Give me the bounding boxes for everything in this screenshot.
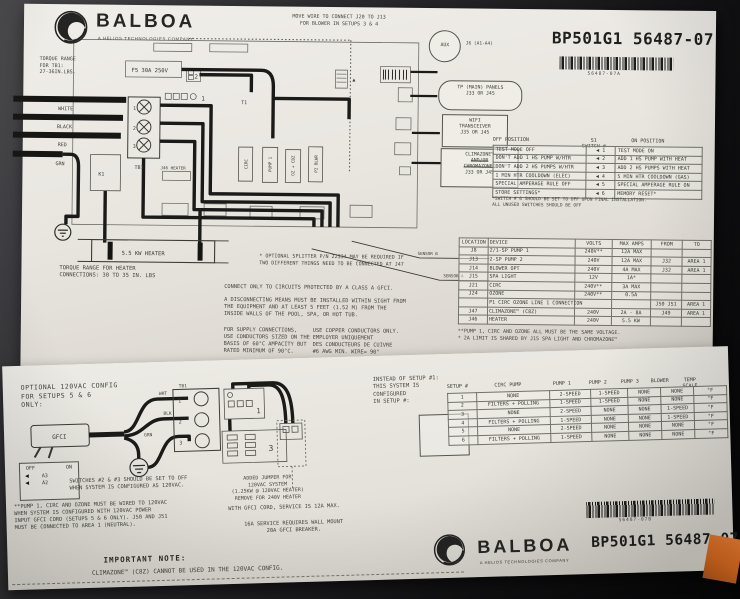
aux-label: AUX (440, 43, 449, 48)
table-cell: ◀ 2 (586, 155, 615, 164)
copper-note: USE COPPER CONDUCTORS ONLY.EMPLOYER UNIQ… (313, 328, 399, 357)
switch-footnotes: *SWITCH # 6 SHOULD BE SET TO OFF UPON FI… (492, 197, 647, 210)
gfci-plug (31, 424, 90, 459)
table-cell: 1A* (612, 274, 651, 283)
table-cell: FILTERS + POLLING (478, 434, 551, 445)
table-cell: NONE (662, 430, 695, 440)
alignment-mark-icon: ▲ (352, 77, 355, 83)
table-cell (682, 275, 711, 284)
table-cell (651, 248, 682, 257)
table-cell: J15 (459, 272, 488, 281)
conn2-label: 2 (194, 74, 198, 81)
relay-pump1-label: PUMP 1 (267, 156, 272, 172)
table-cell: AREA 1 (682, 257, 711, 266)
ground-icon (55, 224, 71, 240)
table-cell: 3A MAX (612, 282, 651, 291)
table-cell: 240V (574, 308, 611, 317)
block1-label: 1 (256, 407, 260, 415)
aux-ref: J6 (A1-A4) (466, 41, 493, 47)
brand-tagline: A HELIOS TECHNOLOGIES COMPANY (480, 558, 570, 565)
table-cell: 240V (575, 265, 612, 274)
table-cell: °F (695, 429, 728, 439)
torque-tb1-note: TORQUE RANGEFOR TB1:27-36IN.LBS. (39, 56, 75, 76)
table-cell: FROM (651, 240, 682, 249)
table-cell (682, 283, 711, 292)
table-cell: J32 (651, 257, 682, 266)
table-cell: J47 (458, 307, 487, 316)
table-cell: 240V** (575, 282, 612, 291)
table-cell: J13 (459, 255, 488, 264)
table-cell: AREA 1 (682, 300, 711, 309)
relay-blwr-label: P2 BLWR (313, 155, 318, 173)
tb1-terminal-2: 2 (179, 419, 182, 425)
dip-on-label: ON (66, 464, 72, 470)
brand-tagline: A HELIOS TECHNOLOGIES COMPANY (98, 36, 194, 42)
setup-table: 1NONE2-SPEED1-SPEEDNONENONE°F2FILTERS + … (447, 385, 728, 445)
heater-torque-note: TORQUE RANGE FOR HEATERCONNECTIONS: 30 T… (59, 265, 155, 281)
chip-barcode (383, 70, 406, 80)
table-cell (682, 292, 711, 301)
table-cell: 12A MAX (612, 248, 651, 257)
wire-grn-label: GRN (56, 161, 65, 167)
wire-white-label: WHITE (58, 106, 73, 112)
callout-leads (410, 72, 442, 163)
tb1-label: TB1 (134, 165, 143, 171)
table-cell (651, 274, 682, 283)
table-cell (682, 249, 711, 258)
jumper-note: ADDED JUMPER FOR120VAC SYSTEM(1.25KW @ 1… (205, 473, 330, 503)
block1-label: 1 (201, 96, 205, 103)
table-cell (681, 318, 710, 327)
balboa-logo-icon (431, 531, 468, 568)
wire-red-label: RED (58, 142, 67, 148)
tb1-terminal-1: 1 (133, 106, 136, 112)
table-cell: ◀ 4 (586, 172, 615, 181)
optional-config-title: OPTIONAL 120VAC CONFIGFOR SETUPS 5 & 6ON… (21, 381, 119, 409)
table-cell: HEATER (487, 316, 574, 326)
cord-and-wires (88, 382, 294, 469)
text-line: J33 OR J45 (439, 91, 521, 98)
barcode-caption: 56487-07A (587, 72, 620, 78)
text-line: RATED MINIMUM OF 90°C. (224, 348, 310, 356)
important-note-body: CLIMAZONE™ (C8Z) CANNOT BE USED IN THE 1… (92, 565, 284, 578)
splitter-note: * OPTIONAL SPLITTER P/N 22334 MAY BE REQ… (236, 253, 426, 268)
table-cell: NONE (629, 430, 662, 440)
table-cell: J50 J51 (651, 300, 682, 309)
table-cell: AREA 1 (682, 266, 711, 275)
important-note-title: IMPORTANT NOTE: (103, 553, 186, 565)
table-cell (612, 300, 651, 309)
disconnect-note: A DISCONNECTING MEANS MUST BE INSTALLED … (224, 297, 406, 320)
dip-a2-label: A2 (42, 480, 48, 486)
table-cell: ◀ 6 (586, 189, 615, 198)
dip-arrow-icon: ◀ (25, 481, 29, 487)
table-cell: 240V** (575, 248, 612, 257)
table-cell: J49 (650, 309, 681, 318)
table-cell: 1-SPEED (551, 432, 592, 442)
fuse-f5-label: F5 30A 250V (131, 68, 168, 74)
text-line: 27-36IN.LBS. (39, 69, 75, 76)
move-wire-note: MOVE WIRE TO CONNECT J20 TO J13FOR BLOWE… (254, 13, 424, 28)
table-cell: ◀ 3 (586, 163, 615, 172)
tb1-terminal-3: 3 (133, 144, 136, 150)
location-table: LOCATIONDEVICEVOLTSMAX AMPSFROMTO J82/1-… (458, 237, 712, 327)
dip-off-label: OFF (26, 465, 35, 471)
k1-relay (90, 154, 120, 190)
thick-wires (62, 68, 350, 245)
photo-scene: 1 2 3 TB1 F5 30A 250V T1 K1 1 2 WHITE BL… (0, 0, 740, 599)
gfci-label: GFCI (52, 434, 67, 441)
table-cell: NONE (592, 431, 629, 441)
tb1-label: TB1 (179, 383, 188, 389)
tb1-terminal-2: 2 (133, 126, 136, 132)
table-cell (459, 298, 488, 307)
grn-label: GRN (144, 432, 153, 438)
relay-circ-label: CIRC (243, 159, 248, 170)
table-cell: 240V (575, 256, 612, 265)
text-line: TORQUE RANGE (40, 56, 76, 63)
table-cell: 0.5A (612, 291, 651, 300)
table-cell: 6 (449, 436, 478, 445)
text-line: CONNECTIONS: 30 TO 35 IN. LBS (59, 272, 155, 280)
orange-object (702, 534, 740, 583)
ground-icon (130, 458, 148, 476)
wire-black-label: BLACK (57, 124, 72, 130)
instead-note: INSTEAD OF SETUP #1:THIS SYSTEM ISCONFIG… (373, 375, 440, 406)
service-note: 16A SERVICE REQUIRES WALL MOUNT20A GFCI … (235, 519, 353, 536)
text-line: IN SETUP #: (373, 397, 439, 406)
table-cell (651, 283, 682, 292)
table-cell: ◀ 5 (586, 181, 615, 190)
barcode (560, 56, 674, 70)
brand-wordmark: BALBOA (96, 11, 196, 34)
table-cell: 240V** (575, 291, 612, 300)
small-connectors (165, 70, 196, 99)
sheet-part-b: GFCI WHT BLK GRN TB1 1 2 3 1 3 OPTIONAL … (2, 346, 734, 590)
table-cell: ◀ 1 (586, 146, 615, 155)
heater-label: 5.5 KW HEATER (122, 251, 166, 257)
table-cell: 4A MAX (612, 265, 651, 274)
table-cell: VOLTS (575, 239, 612, 248)
brand-wordmark: BALBOA (477, 535, 573, 559)
table-cell: J32 (651, 266, 682, 275)
table-cell: 5.5 KW (611, 317, 650, 326)
barcode (586, 499, 714, 519)
switch-table: TEST MODE OFF◀ 1TEST MODE ONDON'T ADD 1 … (492, 145, 703, 200)
table-cell: TO (682, 240, 711, 249)
t1-label: T1 (241, 100, 247, 106)
table-cell: 2A - 8A (611, 308, 650, 317)
table-cell: J21 (459, 281, 488, 290)
location-notes: **PUMP 1, CIRC AND OZONE ALL MUST BE THE… (458, 328, 621, 343)
table-cell: J14 (459, 264, 488, 273)
dip-a3-label: A3 (42, 473, 48, 479)
table-cell: J24 (459, 289, 488, 298)
dip-switch-s1 (336, 74, 346, 82)
tb1-terminal-3: 3 (179, 440, 182, 446)
k1-label: K1 (98, 172, 104, 178)
table-cell: J46 (458, 315, 487, 324)
table-cell: 240V (574, 316, 611, 325)
table-cell: MAX AMPS (612, 239, 651, 248)
part-number: BP501G1 56487-07 (552, 27, 714, 50)
table-cell: 12V (575, 273, 612, 282)
block3-label: 3 (268, 444, 273, 453)
board-outline (72, 39, 419, 228)
table-cell (650, 317, 681, 326)
tb1-terminal-1: 1 (178, 398, 181, 404)
wht-label: WHT (159, 391, 168, 397)
table-cell: 12A MAX (612, 257, 651, 266)
callout-aux: AUX (429, 30, 461, 62)
table-cell (651, 291, 682, 300)
output-relays (238, 146, 322, 183)
barcode-caption: 56487-07B (619, 517, 653, 524)
balboa-logo-icon (52, 8, 90, 46)
pump-120vac-note: **PUMP 1, CIRC AND OZONE MUST BE WIRED T… (14, 500, 168, 532)
table-cell: J8 (459, 246, 488, 255)
table-cell: LOCATION (459, 238, 488, 247)
blk-label: BLK (163, 411, 172, 417)
sheet-part-a: 1 2 3 TB1 F5 30A 250V T1 K1 1 2 WHITE BL… (20, 4, 716, 375)
supply-note: FOR SUPPLY CONNECTIONS,USE CONDUCTORS SI… (224, 327, 310, 356)
table-cell: AREA 1 (681, 309, 710, 318)
callout-panels: TP (MAIN) PANELSJ33 OR J45 (438, 80, 522, 111)
j46-heater-label: J46 HEATER (160, 165, 186, 170)
relay-oz-label: OZ + CBZ (290, 155, 295, 176)
text-line: * 2A LIMIT IS SHARED BY J15 SPA LIGHT AN… (458, 335, 621, 343)
brand-block: BALBOA A HELIOS TECHNOLOGIES COMPANY (52, 8, 282, 50)
